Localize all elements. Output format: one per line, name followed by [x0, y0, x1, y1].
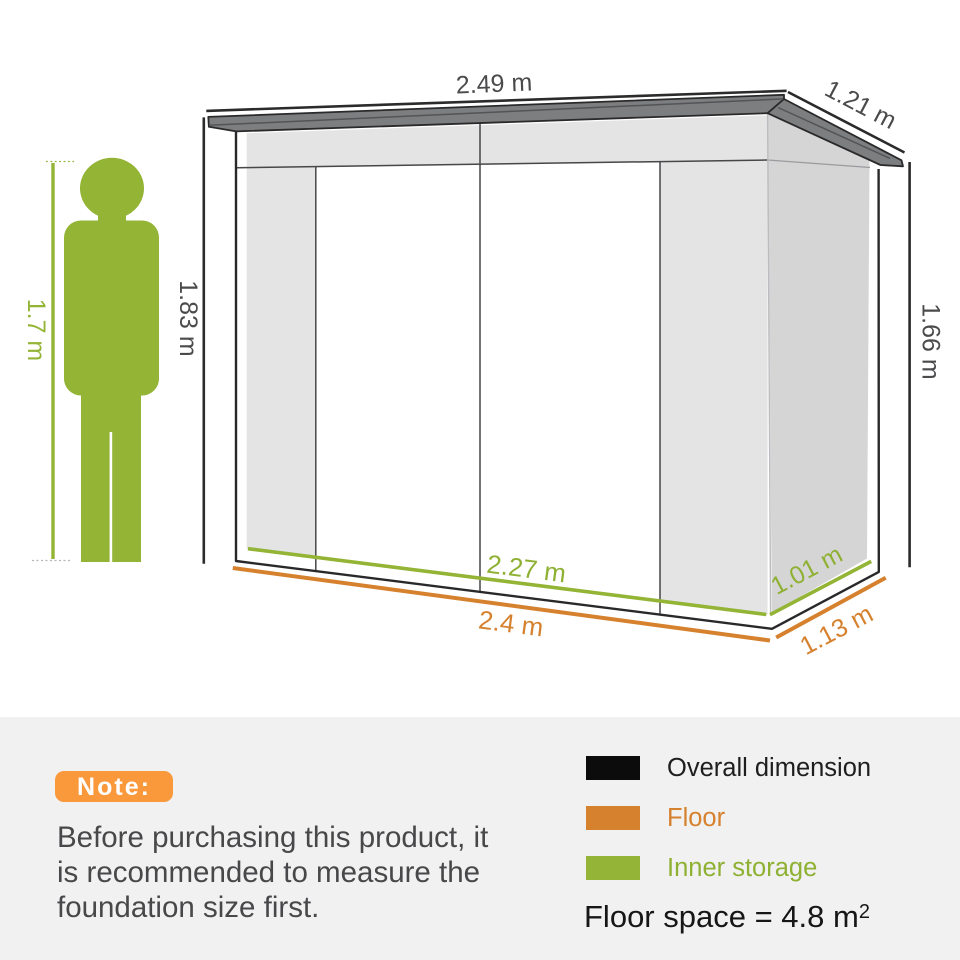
- svg-text:2.49 m: 2.49 m: [455, 68, 532, 99]
- svg-text:1.83 m: 1.83 m: [174, 280, 202, 356]
- svg-text:1.66 m: 1.66 m: [917, 303, 945, 379]
- svg-text:1.7 m: 1.7 m: [22, 299, 50, 362]
